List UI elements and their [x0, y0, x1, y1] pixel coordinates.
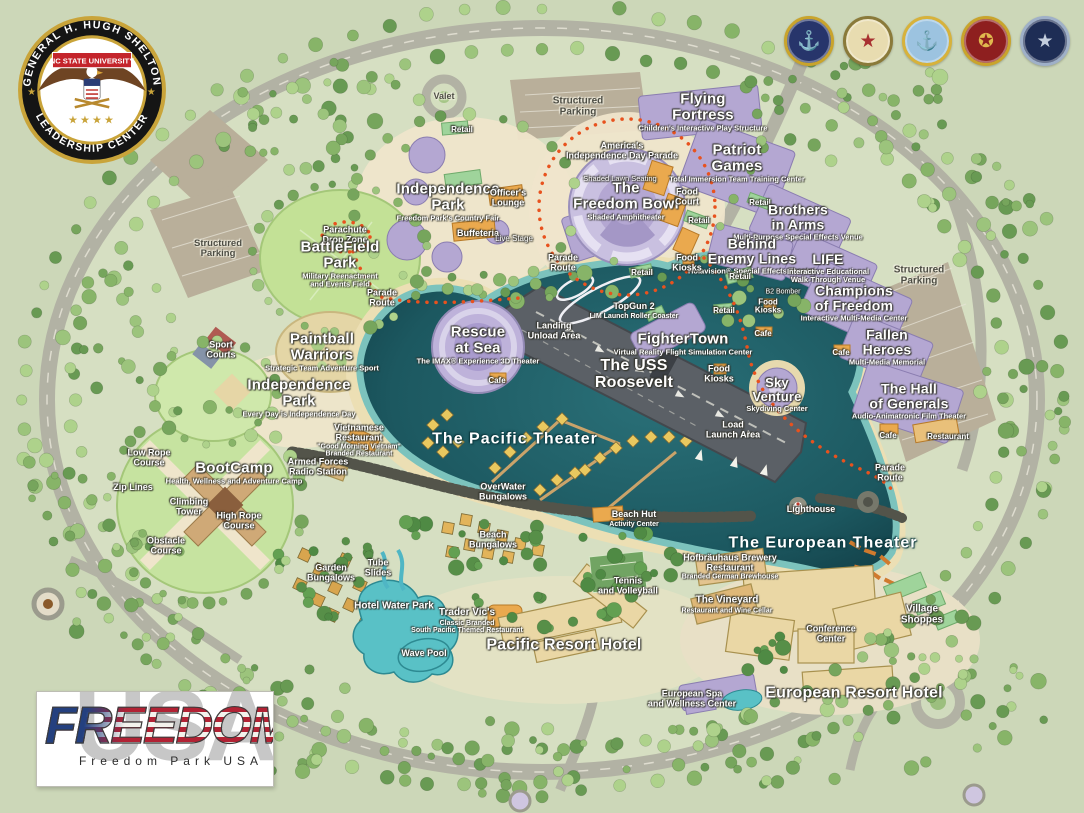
freedom-usa-logo: USA FREEDOM Freedom Park USA	[36, 691, 274, 787]
freedom-park-tagline: Freedom Park USA	[79, 754, 263, 768]
us-air-force-seal-glyph: ★	[1036, 32, 1053, 51]
freedom-park-master-plan-map: ValetStructured ParkingStructured Parkin…	[0, 0, 1084, 813]
us-marine-corps-seal: ✪	[961, 16, 1011, 66]
us-army-seal-glyph: ★	[859, 32, 876, 51]
seal-stars-text: ★★★★	[68, 114, 116, 126]
sky-venture	[749, 360, 805, 416]
rescue-at-sea-theater	[432, 301, 524, 393]
south-medallion	[510, 791, 530, 811]
nc-state-banner-text: NC STATE UNIVERSITY	[50, 57, 135, 66]
armed-services-seals: ⚓★⚓✪★	[784, 16, 1070, 66]
us-army-seal: ★	[843, 16, 893, 66]
us-air-force-seal: ★	[1020, 16, 1070, 66]
shelton-leadership-center-seal: GENERAL H. HUGH SHELTON LEADERSHIP CENTE…	[16, 14, 168, 166]
freedom-title-text: FREEDOM	[45, 700, 274, 752]
southeast-medallion	[964, 785, 984, 805]
seal-star-left: ★	[27, 87, 36, 98]
us-coast-guard-seal: ⚓	[902, 16, 952, 66]
us-coast-guard-seal-glyph: ⚓	[915, 32, 939, 51]
seal-star-right: ★	[147, 87, 156, 98]
us-navy-seal: ⚓	[784, 16, 834, 66]
us-marine-corps-seal-glyph: ✪	[978, 32, 994, 51]
us-navy-seal-glyph: ⚓	[797, 32, 821, 51]
